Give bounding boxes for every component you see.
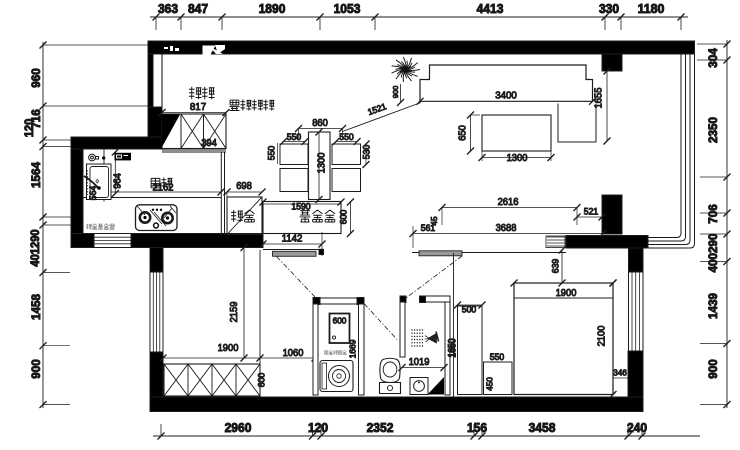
svg-text:1180: 1180	[638, 2, 665, 16]
svg-text:1142: 1142	[282, 234, 303, 245]
svg-text:401290: 401290	[30, 229, 42, 266]
svg-text:1300: 1300	[507, 153, 528, 164]
svg-text:1439: 1439	[706, 293, 720, 319]
svg-text:550: 550	[287, 132, 301, 142]
svg-text:3400: 3400	[495, 91, 517, 102]
svg-text:4413: 4413	[477, 2, 504, 16]
svg-text:304: 304	[706, 48, 720, 68]
svg-text:1890: 1890	[259, 2, 286, 16]
svg-text:450: 450	[485, 377, 495, 391]
svg-text:639: 639	[551, 259, 561, 273]
svg-text:1900: 1900	[218, 343, 239, 354]
svg-text:363: 363	[158, 2, 178, 16]
svg-text:1564: 1564	[29, 162, 43, 188]
svg-text:120: 120	[24, 119, 36, 138]
svg-text:330: 330	[599, 2, 619, 16]
svg-text:2159: 2159	[229, 301, 240, 322]
svg-text:521: 521	[584, 207, 598, 217]
svg-text:900: 900	[29, 359, 43, 379]
svg-text:1300: 1300	[317, 152, 328, 173]
svg-text:600: 600	[257, 373, 267, 387]
svg-text:847: 847	[188, 2, 208, 16]
svg-text:240: 240	[627, 421, 647, 435]
svg-text:1669: 1669	[348, 339, 358, 358]
svg-text:1650: 1650	[446, 338, 456, 357]
svg-text:550: 550	[267, 146, 277, 160]
svg-text:2100: 2100	[597, 325, 608, 346]
svg-text:1590: 1590	[291, 202, 310, 212]
svg-text:1060: 1060	[283, 348, 304, 359]
svg-text:346: 346	[613, 368, 627, 378]
svg-text:2960: 2960	[225, 421, 252, 435]
svg-text:400290: 400290	[706, 233, 720, 272]
svg-text:550: 550	[490, 352, 504, 362]
svg-text:564: 564	[88, 186, 98, 200]
svg-text:900: 900	[706, 359, 720, 379]
svg-text:2616: 2616	[498, 197, 519, 208]
svg-text:1655: 1655	[594, 87, 605, 108]
svg-text:706: 706	[706, 204, 720, 224]
svg-text:600: 600	[339, 210, 349, 224]
svg-text:650: 650	[458, 125, 469, 141]
svg-text:698: 698	[236, 181, 252, 192]
svg-text:1019: 1019	[409, 357, 430, 368]
svg-text:1053: 1053	[334, 2, 361, 16]
svg-text:2352: 2352	[367, 421, 394, 435]
svg-text:500: 500	[462, 305, 476, 315]
svg-text:600: 600	[333, 316, 347, 326]
svg-text:817: 817	[190, 102, 207, 113]
svg-text:3688: 3688	[496, 223, 517, 234]
svg-text:1458: 1458	[29, 294, 43, 320]
svg-text:550: 550	[339, 132, 353, 142]
svg-text:960: 960	[29, 68, 43, 88]
svg-text:394: 394	[201, 138, 217, 149]
svg-text:156: 156	[467, 421, 487, 435]
svg-text:3458: 3458	[529, 421, 556, 435]
svg-text:2350: 2350	[706, 117, 720, 143]
svg-text:860: 860	[312, 118, 328, 129]
svg-text:45: 45	[429, 216, 439, 226]
svg-text:120: 120	[308, 421, 328, 435]
svg-text:964: 964	[113, 173, 124, 189]
svg-text:1900: 1900	[556, 288, 577, 299]
svg-text:900: 900	[391, 86, 400, 99]
